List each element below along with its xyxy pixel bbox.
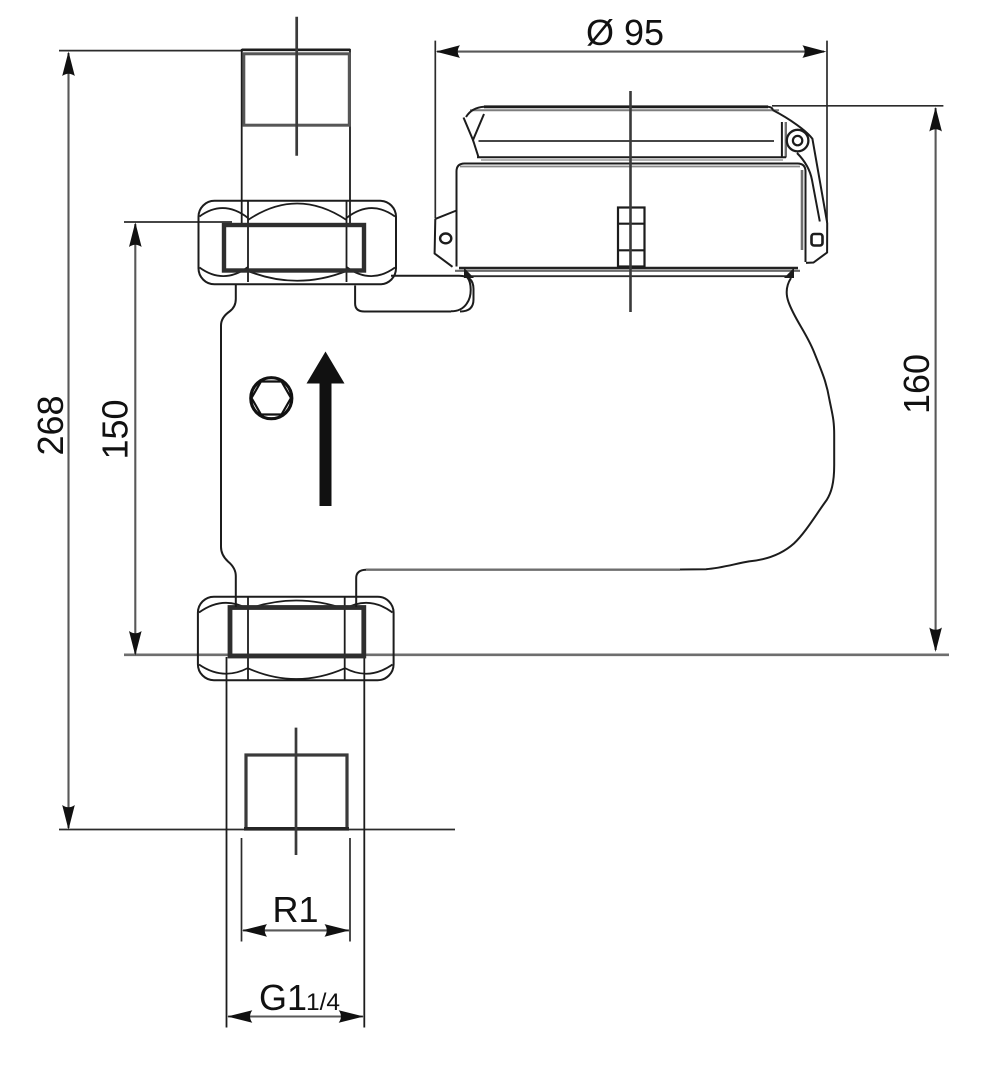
svg-text:R1: R1 <box>273 889 319 930</box>
svg-text:160: 160 <box>896 354 937 414</box>
svg-text:G1: G1 <box>259 977 307 1018</box>
svg-text:Ø 95: Ø 95 <box>586 12 664 53</box>
svg-text:1/4: 1/4 <box>306 989 340 1016</box>
svg-text:150: 150 <box>95 399 136 459</box>
svg-text:268: 268 <box>30 395 71 455</box>
